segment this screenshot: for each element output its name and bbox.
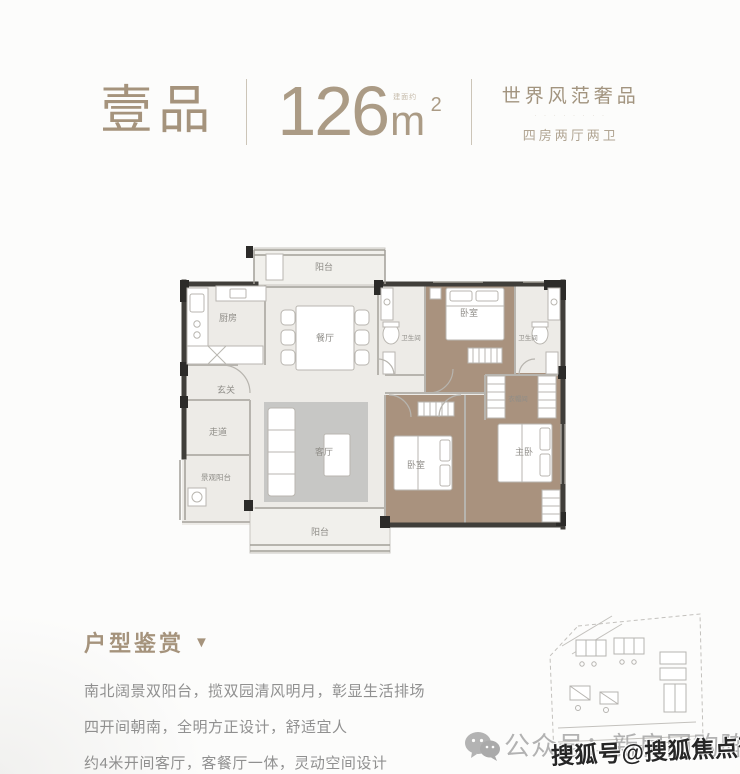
site-buildings	[570, 638, 686, 713]
slogan-caption: · · · · · · · ·	[502, 113, 640, 119]
room-label-balcony-bottom: 阳台	[311, 526, 329, 537]
wechat-icon	[464, 730, 500, 762]
room-label-view-balcony: 景观阳台	[201, 472, 231, 482]
appreciation-heading: 户型鉴赏 ▼	[84, 626, 564, 658]
room-label-bath-right: 卫生间	[518, 333, 538, 342]
room-label-hallway: 走道	[209, 426, 227, 437]
room-label-bath-left: 卫生间	[401, 333, 421, 342]
area-superscript: 2	[431, 94, 442, 116]
room-label-closet: 衣帽间	[508, 394, 528, 403]
room-label-kitchen: 厨房	[219, 312, 237, 323]
header: 壹品 126 建面约 m 2 世界风范奢品 · · · · · · · · 四房…	[0, 68, 740, 156]
down-triangle-icon: ▼	[194, 634, 212, 651]
area-value: 126	[277, 83, 388, 140]
room-label-master: 主卧	[515, 446, 533, 457]
slogan-subtitle: 四房两厅两卫	[502, 125, 640, 144]
room-label-bedroom-top: 卧室	[460, 307, 478, 318]
area-unit: m	[390, 97, 425, 144]
header-divider	[471, 79, 472, 145]
area-note: 建面约	[393, 92, 417, 102]
slogan-block: 世界风范奢品 · · · · · · · · 四房两厅两卫	[502, 81, 640, 144]
slogan: 世界风范奢品	[502, 81, 640, 108]
appreciation-title: 户型鉴赏	[84, 626, 184, 658]
header-divider	[246, 79, 247, 145]
room-label-entry: 玄关	[217, 384, 235, 395]
room-label-balcony-top: 阳台	[315, 261, 333, 272]
area-figure: 126 建面约 m 2	[277, 83, 440, 140]
room-label-bedroom-bottom: 卧室	[407, 459, 425, 470]
appreciation-line: 南北阔景双阳台，揽双园清风明月，彰显生活排场	[84, 674, 564, 710]
plan-title: 壹品	[100, 86, 216, 138]
page: 壹品 126 建面约 m 2 世界风范奢品 · · · · · · · · 四房…	[0, 0, 740, 774]
floor-plan: 阳台 厨房 餐厅 玄关 卫生间 卧室 卫生间 衣帽间 走道 景观阳台 客厅 阳台…	[178, 244, 568, 559]
room-label-dining: 餐厅	[316, 332, 334, 343]
room-label-living: 客厅	[315, 446, 333, 457]
